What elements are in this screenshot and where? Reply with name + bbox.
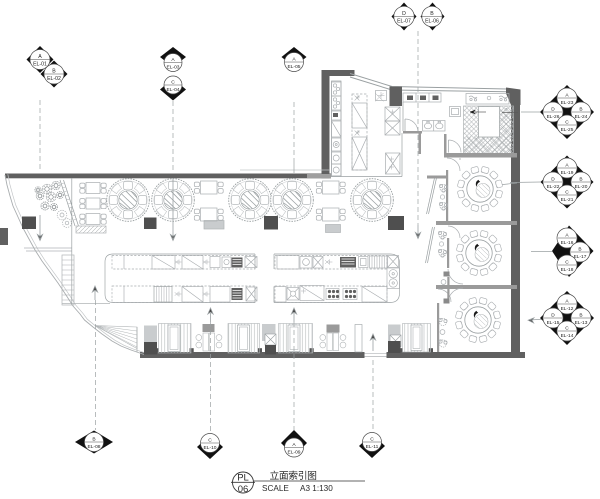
svg-text:EL-13: EL-13 (575, 320, 588, 326)
svg-text:B: B (578, 246, 581, 252)
svg-text:EL-11: EL-11 (366, 444, 379, 450)
svg-text:EL-23: EL-23 (561, 100, 574, 106)
svg-text:EL-26: EL-26 (547, 114, 560, 120)
svg-text:EL-19: EL-19 (561, 170, 574, 176)
svg-text:EL-22: EL-22 (547, 184, 560, 190)
svg-text:EL-07: EL-07 (397, 19, 411, 25)
svg-text:D: D (551, 312, 555, 318)
svg-text:B: B (579, 106, 582, 112)
svg-text:PL: PL (237, 473, 249, 484)
svg-text:EL-18: EL-18 (561, 267, 574, 273)
svg-text:B: B (430, 11, 434, 17)
svg-text:D: D (551, 176, 555, 182)
svg-text:立面索引图: 立面索引图 (270, 469, 317, 482)
svg-text:C: C (208, 437, 212, 443)
svg-text:C: C (565, 259, 569, 265)
svg-text:D: D (402, 11, 406, 17)
svg-text:EL-21: EL-21 (561, 197, 574, 203)
svg-text:B: B (92, 436, 95, 442)
svg-text:EL-16: EL-16 (561, 240, 574, 246)
svg-text:EL-12: EL-12 (561, 306, 574, 312)
svg-text:EL-05: EL-05 (287, 64, 300, 70)
svg-text:SCALE: SCALE (262, 484, 289, 493)
svg-text:C: C (171, 79, 175, 85)
svg-text:EL-08: EL-08 (87, 444, 100, 450)
svg-text:EL-14: EL-14 (561, 333, 574, 339)
svg-text:EL-20: EL-20 (575, 184, 588, 190)
svg-text:EL-10: EL-10 (203, 445, 216, 451)
svg-text:EL-25: EL-25 (561, 127, 574, 133)
svg-text:EL-15: EL-15 (547, 320, 560, 326)
svg-text:C: C (565, 189, 569, 195)
svg-text:EL-06: EL-06 (425, 19, 439, 25)
svg-text:C: C (370, 436, 374, 442)
svg-text:B: B (52, 68, 56, 74)
svg-text:06: 06 (238, 484, 249, 495)
svg-text:EL-24: EL-24 (575, 114, 588, 120)
svg-text:A3 1:130: A3 1:130 (300, 484, 333, 493)
svg-text:EL-02: EL-02 (47, 76, 61, 82)
svg-text:EL-04: EL-04 (166, 87, 179, 93)
svg-text:EL-01: EL-01 (33, 62, 47, 68)
svg-text:D: D (551, 106, 555, 112)
svg-text:B: B (579, 312, 582, 318)
svg-text:B: B (579, 176, 582, 182)
svg-text:A: A (38, 54, 42, 60)
svg-text:C: C (565, 325, 569, 331)
svg-text:EL-03: EL-03 (166, 65, 179, 71)
svg-text:C: C (565, 119, 569, 125)
svg-text:EL-09: EL-09 (287, 450, 300, 456)
